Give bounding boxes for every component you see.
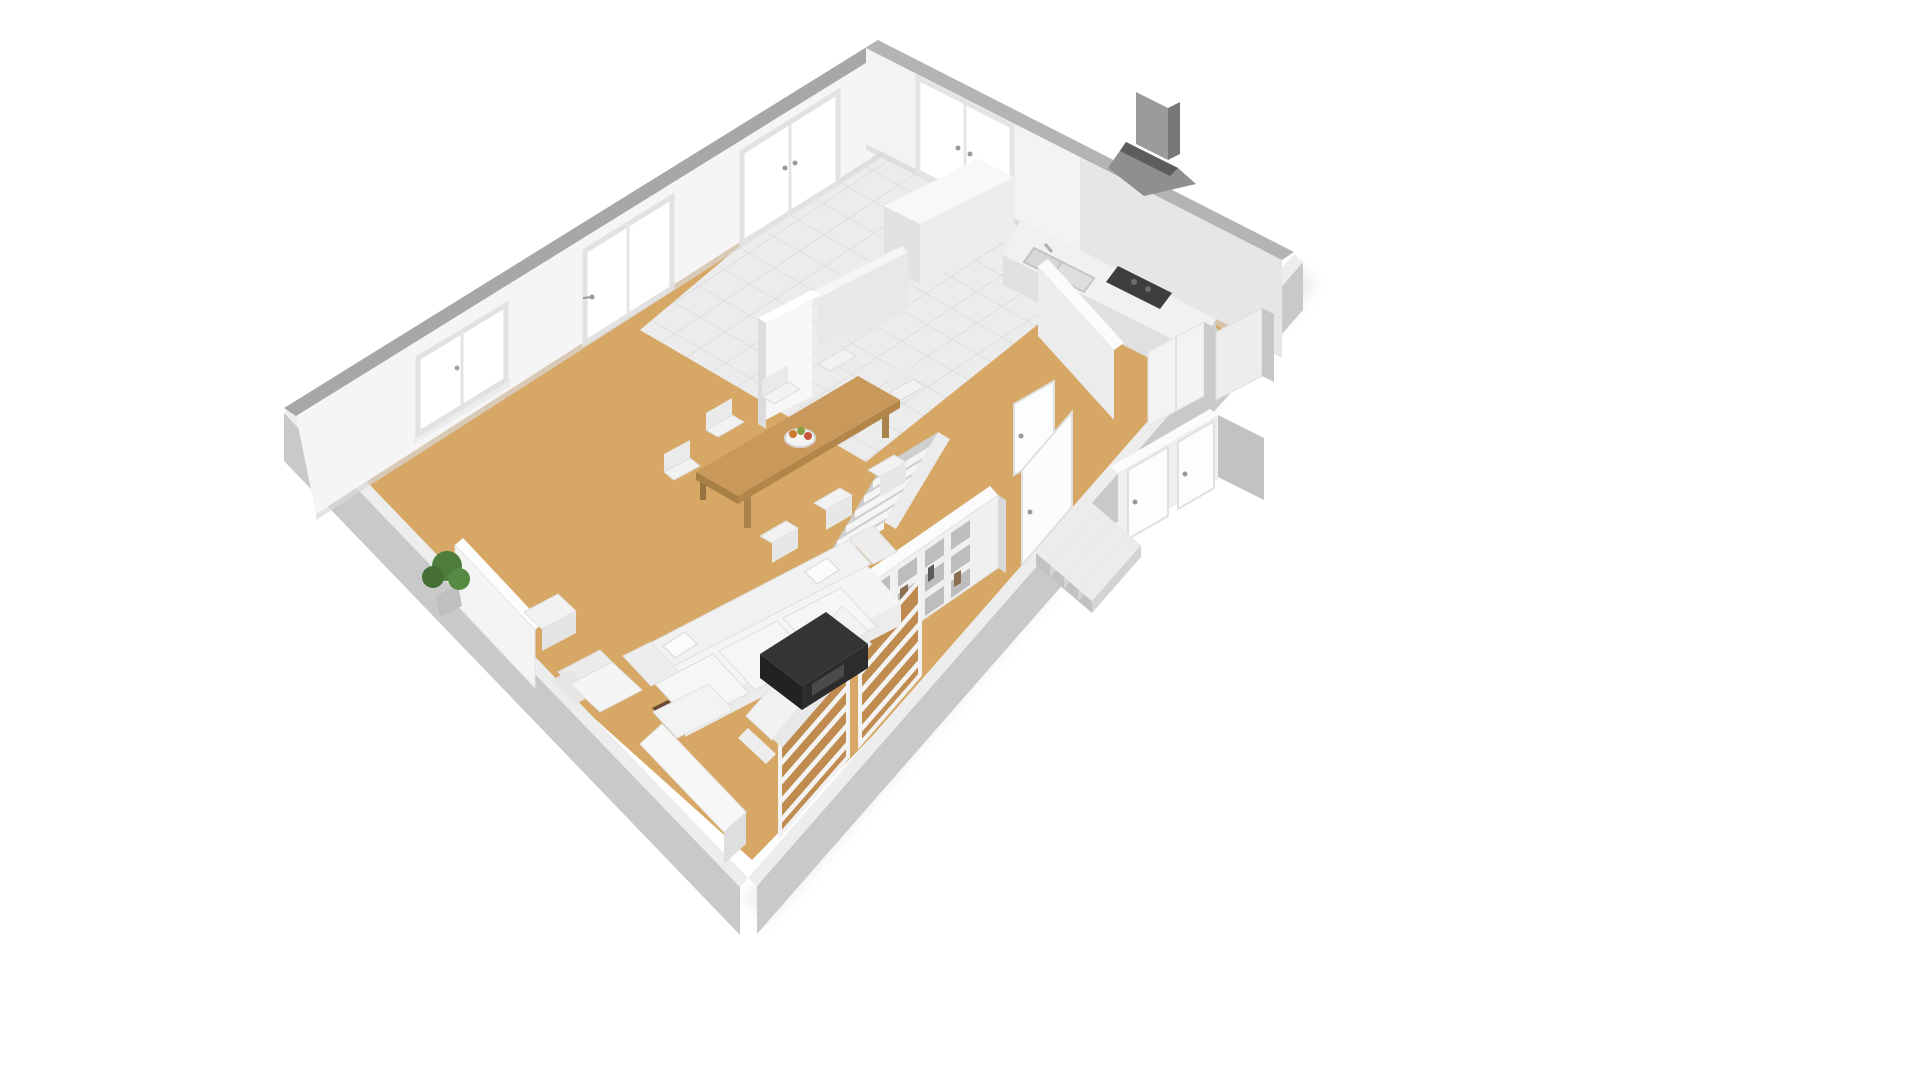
door-handle [956, 146, 961, 151]
door-handle [783, 166, 788, 171]
floorplan-render [0, 0, 1920, 1080]
window-handle [455, 366, 460, 371]
door-handle [1183, 472, 1188, 477]
corner-wall-block [1218, 415, 1264, 500]
floorplan-canvas [0, 0, 1920, 1080]
door-handle [1133, 500, 1138, 505]
door-handle [1019, 434, 1024, 439]
door-handle [793, 161, 798, 166]
door-handle [968, 152, 973, 157]
door-handle [1028, 510, 1033, 515]
